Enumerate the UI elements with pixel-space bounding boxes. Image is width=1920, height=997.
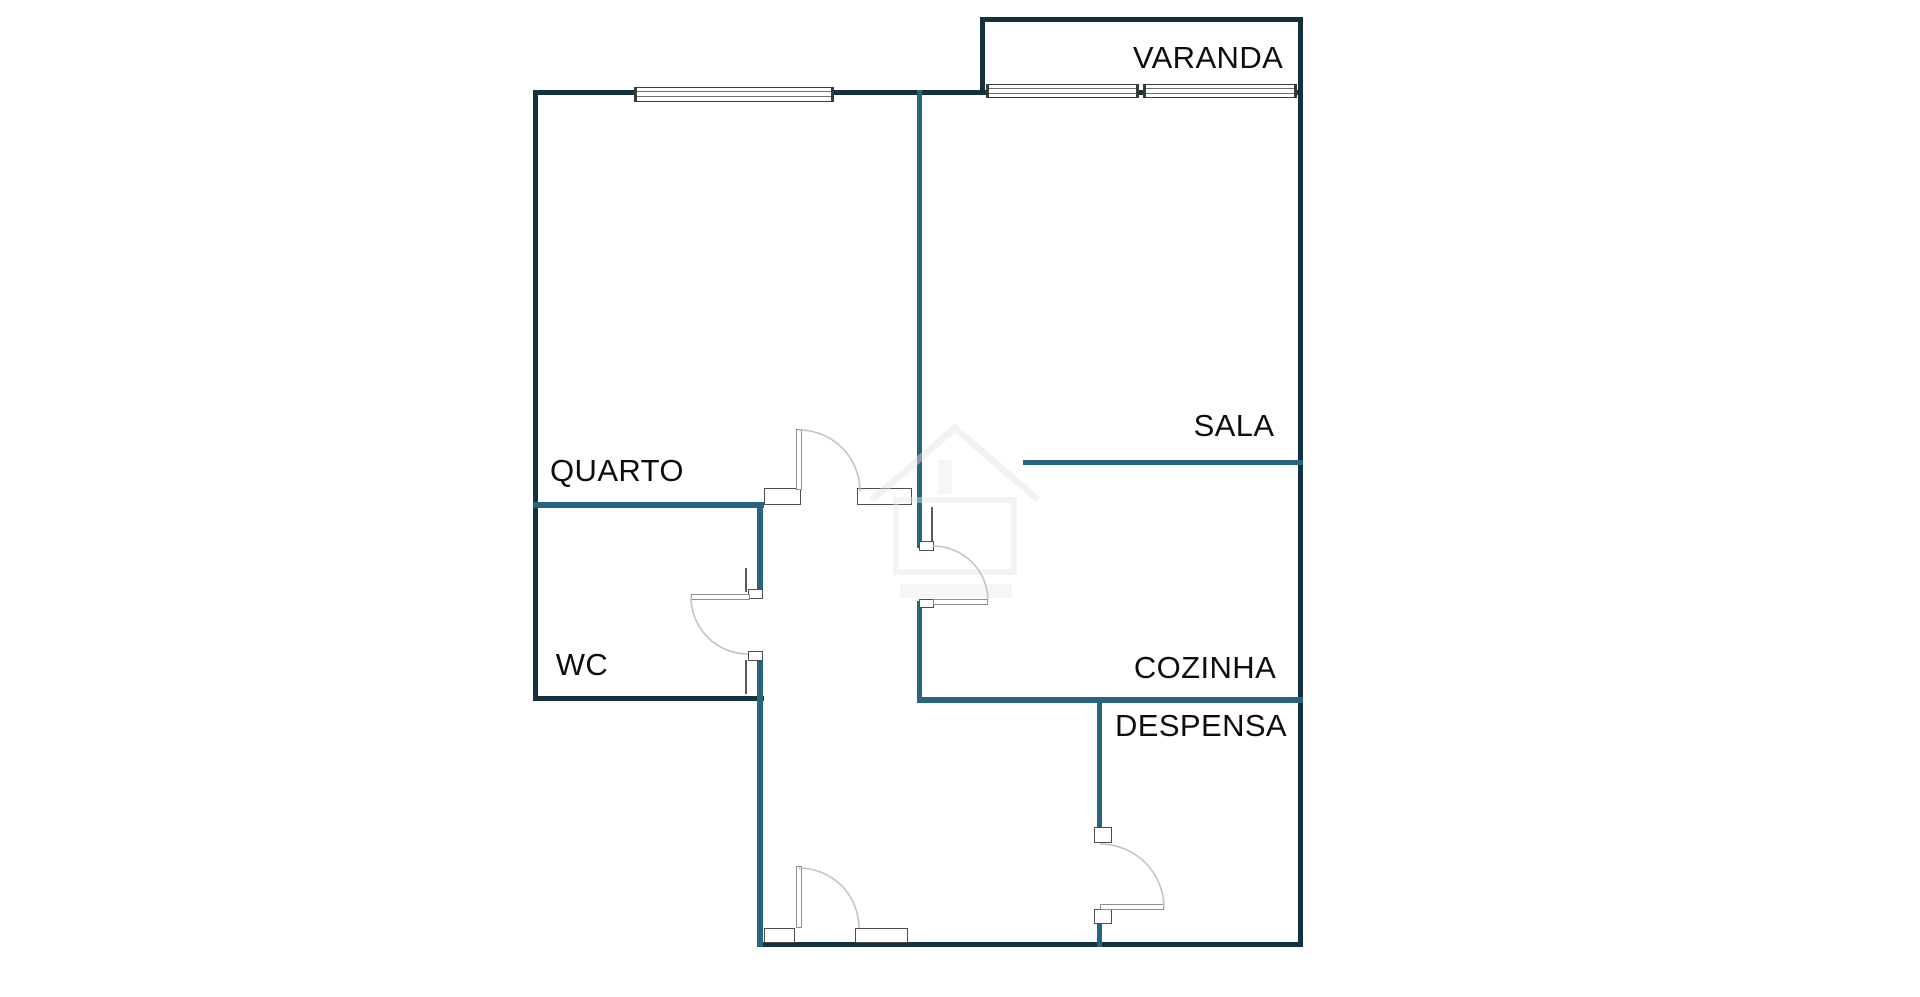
entrance-door-leaf [796, 866, 802, 928]
wc-door-leaf [691, 594, 750, 600]
despensa-door-arc [1100, 844, 1164, 908]
cozinha-door-arc [933, 546, 988, 601]
cozinha-door-jamb-bottom [919, 599, 934, 608]
wall-cozinha-bottom [917, 697, 1303, 703]
entrance-door-jamb-left [764, 928, 795, 943]
entrance-door-arc [799, 868, 859, 928]
wall-quarto-sala-divider [917, 90, 922, 703]
quarto-door-leaf [796, 429, 802, 490]
wc-door-frame-line-top [745, 568, 747, 592]
despensa-door-leaf [1100, 904, 1164, 910]
wall-quarto-bottom [533, 502, 764, 508]
room-label-varanda: VARANDA [1133, 40, 1283, 76]
despensa-door-jamb-bottom [1094, 909, 1112, 924]
wc-door-jamb-top [748, 589, 763, 599]
despensa-door-opening [1095, 842, 1104, 909]
door-arcs-layer [0, 0, 1920, 997]
quarto-door-jamb-right [857, 488, 912, 505]
sala-window-left-icon [986, 84, 1139, 98]
sala-window-right-icon [1143, 84, 1297, 98]
quarto-door-arc [799, 430, 860, 491]
wall-varanda-top [980, 17, 1303, 22]
despensa-door-jamb-top [1094, 827, 1112, 843]
quarto-door-jamb-left [764, 488, 801, 505]
wall-hall-left [757, 502, 763, 947]
wc-door-opening [755, 597, 765, 654]
floor-plan: VARANDA QUARTO WC SALA COZINHA DESPENSA [0, 0, 1920, 997]
quarto-window-icon [634, 87, 834, 102]
wc-door-frame-line-bottom [745, 660, 747, 694]
cozinha-door-leaf [933, 599, 988, 605]
room-label-despensa: DESPENSA [1115, 708, 1287, 744]
cozinha-door-frame-line [931, 507, 933, 543]
wall-varanda-left [980, 17, 985, 95]
wc-door-jamb-bottom [748, 651, 763, 661]
wall-sala-bottom [1023, 460, 1303, 465]
room-label-quarto: QUARTO [550, 453, 684, 489]
wall-exterior-wc-south [533, 696, 764, 701]
wall-exterior-bottom [757, 942, 1303, 947]
room-label-cozinha: COZINHA [1134, 650, 1276, 686]
wall-exterior-right [1298, 17, 1303, 947]
room-label-wc: WC [556, 647, 608, 683]
entrance-door-jamb-right [855, 928, 908, 943]
cozinha-door-opening [915, 548, 924, 601]
watermark-logo [872, 428, 1038, 598]
cozinha-door-jamb-top [919, 541, 934, 551]
wc-door-arc [691, 597, 748, 654]
room-label-sala: SALA [1194, 408, 1275, 444]
wall-exterior-left [533, 90, 538, 701]
